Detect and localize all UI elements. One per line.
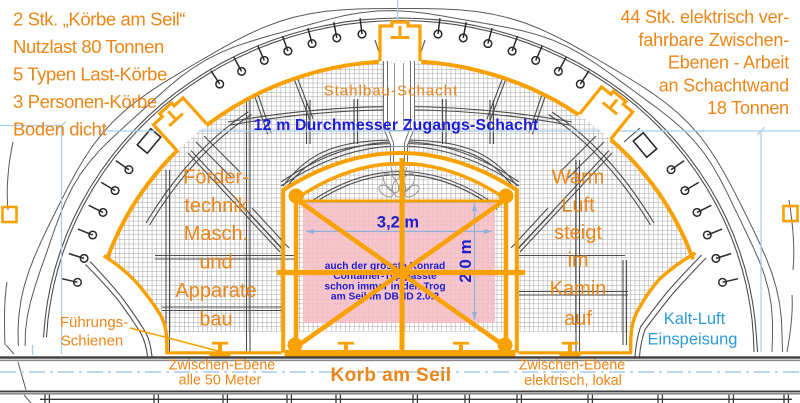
svg-text:12 m Durchmesser Zugangs-Schac: 12 m Durchmesser Zugangs-Schacht [254,117,539,134]
svg-text:Masch.: Masch. [184,223,248,245]
svg-text:2 Stk. „Körbe am Seil“: 2 Stk. „Körbe am Seil“ [13,9,185,30]
svg-text:5 Typen Last-Körbe: 5 Typen Last-Körbe [13,64,167,85]
svg-text:steigt: steigt [554,222,602,244]
svg-text:technik: technik [184,195,248,217]
svg-text:im: im [567,250,588,272]
svg-text:3 Personen-Körbe: 3 Personen-Körbe [13,91,157,112]
svg-text:Führungs-: Führungs- [60,314,128,331]
svg-text:Ebenen - Arbeit: Ebenen - Arbeit [668,53,789,73]
svg-text:am Seil im DBHD 2.0.2: am Seil im DBHD 2.0.2 [331,292,439,303]
svg-text:Zwischen-Ebene: Zwischen-Ebene [169,358,276,374]
svg-text:44 Stk. elektrisch ver-: 44 Stk. elektrisch ver- [621,7,790,27]
svg-text:18 Tonnen: 18 Tonnen [707,98,789,118]
svg-text:an Schachtwand: an Schachtwand [659,75,789,95]
svg-text:und: und [199,252,232,274]
svg-text:2,0 m: 2,0 m [456,239,475,282]
svg-text:3,2 m: 3,2 m [377,214,419,232]
svg-text:Kamin: Kamin [550,278,607,300]
svg-text:Stahlbau-Schacht: Stahlbau-Schacht [324,83,458,100]
svg-text:alle 50 Meter: alle 50 Meter [179,373,262,389]
svg-text:Warm: Warm [552,167,605,189]
svg-text:Nutzlast 80 Tonnen: Nutzlast 80 Tonnen [13,36,164,57]
svg-text:Förder-: Förder- [183,167,249,189]
svg-text:Einspeisung: Einspeisung [648,331,738,349]
svg-text:bau: bau [199,309,232,331]
svg-text:Schienen: Schienen [61,333,124,350]
svg-text:Kalt-Luft: Kalt-Luft [664,310,726,328]
svg-text:auf: auf [564,308,592,330]
svg-text:Apparate: Apparate [175,280,256,302]
svg-text:Korb am Seil: Korb am Seil [331,365,452,386]
svg-text:Luft: Luft [561,195,595,217]
svg-text:Zwischen-Ebene: Zwischen-Ebene [519,358,626,374]
svg-text:Boden dicht: Boden dicht [13,119,107,140]
svg-text:fahrbare Zwischen-: fahrbare Zwischen- [639,30,790,50]
svg-text:elektrisch, lokal: elektrisch, lokal [524,373,622,389]
